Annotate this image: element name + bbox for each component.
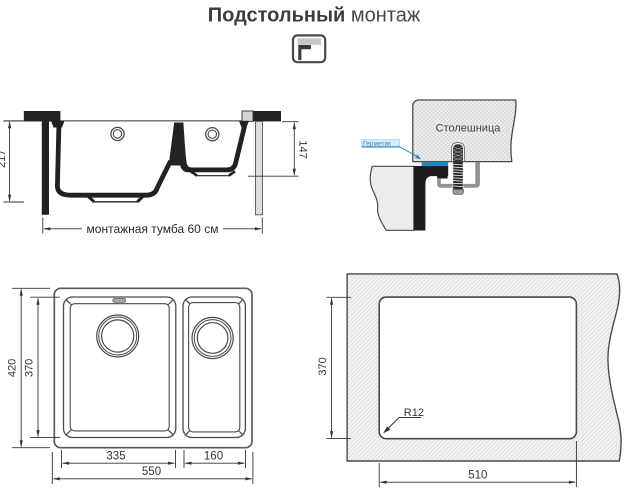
- svg-text:510: 510: [468, 470, 487, 482]
- svg-text:Герметик: Герметик: [363, 140, 391, 147]
- svg-text:420: 420: [7, 359, 19, 377]
- svg-text:335: 335: [106, 451, 125, 463]
- svg-text:160: 160: [204, 451, 223, 463]
- svg-text:217: 217: [0, 150, 8, 168]
- svg-text:370: 370: [317, 357, 329, 375]
- svg-text:монтажная тумба 60 см: монтажная тумба 60 см: [87, 222, 219, 236]
- svg-text:Столешница: Столешница: [436, 123, 502, 135]
- svg-text:370: 370: [24, 359, 36, 377]
- svg-text:147: 147: [297, 140, 309, 158]
- svg-text:Подстольный монтаж: Подстольный монтаж: [208, 5, 421, 27]
- svg-text:550: 550: [142, 466, 161, 478]
